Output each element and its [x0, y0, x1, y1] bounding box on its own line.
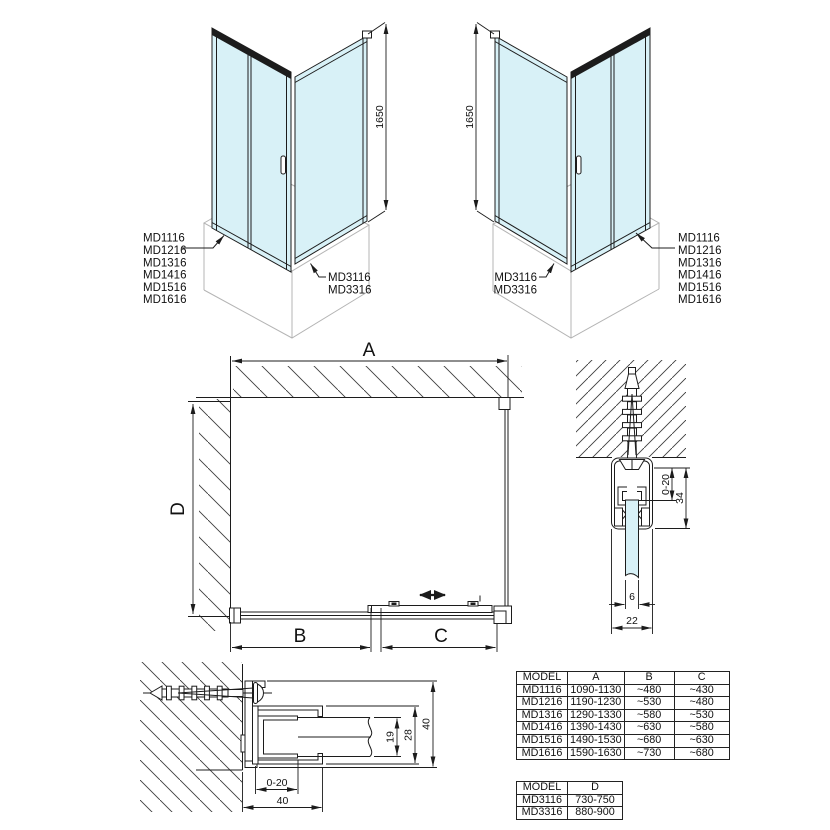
model-label: MD3116 — [328, 272, 371, 284]
table-row: MD1116 1090-1130 ~480 ~430 — [517, 684, 730, 697]
height-dim-label: 34 — [674, 492, 686, 504]
table-cell: 1090-1130 — [568, 684, 625, 697]
table-cell: MD3316 — [517, 807, 568, 820]
table-cell: 1290-1330 — [568, 709, 625, 722]
table-cell: ~580 — [624, 709, 674, 722]
table-cell: ~530 — [674, 709, 729, 722]
model-label: MD1116 — [143, 233, 185, 245]
table-cell: ~730 — [624, 747, 674, 760]
dimension-table-side: MODEL D MD3116 730-750 MD3316 880-900 — [516, 781, 623, 820]
model-label: MD1416 — [678, 270, 721, 282]
dim-d-label: D — [168, 502, 189, 516]
table-cell: 730-750 — [568, 794, 623, 807]
table-header-row: MODEL A B C — [517, 672, 730, 685]
height-dim-label: 1650 — [374, 105, 386, 129]
column-header: C — [674, 672, 729, 685]
model-label: MD1116 — [678, 233, 720, 245]
table-cell: MD1316 — [517, 709, 568, 722]
leader-arrow — [311, 264, 327, 278]
table-cell: ~580 — [674, 722, 729, 735]
table-cell: MD1516 — [517, 734, 568, 747]
table-cell: ~680 — [674, 747, 729, 760]
model-label: MD1516 — [143, 282, 186, 294]
dim-c-label: C — [434, 626, 448, 647]
table-cell: MD3116 — [517, 794, 568, 807]
column-header: B — [624, 672, 674, 685]
column-header: A — [568, 672, 625, 685]
table-row: MD1316 1290-1330 ~580 ~530 — [517, 709, 730, 722]
technical-drawing-sheet: 1650 MD1116 MD1216 MD1316 MD1416 MD1516 … — [0, 0, 830, 830]
side-panel-plan — [499, 398, 510, 611]
adjustable-channel — [253, 706, 323, 764]
model-label: MD1416 — [143, 270, 186, 282]
table-cell: ~480 — [674, 697, 729, 710]
glass-dim-label: 6 — [629, 591, 635, 603]
corner-bracket — [494, 606, 512, 624]
table-cell: 1490-1530 — [568, 734, 625, 747]
model-label: MD3116 — [494, 272, 537, 284]
height-dim-label: 40 — [421, 718, 433, 730]
table-row: MD3116 730-750 — [517, 794, 623, 807]
table-cell: 1390-1430 — [568, 722, 625, 735]
model-label: MD1616 — [678, 294, 721, 306]
iso-view-right: 1650 MD3116 MD3316 MD1116 MD1216 MD1316 … — [464, 23, 721, 339]
door-handle — [281, 156, 286, 174]
width-dim-label: 22 — [626, 615, 638, 627]
glass-panel-section — [298, 718, 372, 757]
side-model-labels: MD3116 MD3316 — [494, 264, 554, 297]
iso-view-left: 1650 MD1116 MD1216 MD1316 MD1416 MD1516 … — [143, 23, 386, 339]
table-cell: MD1216 — [517, 697, 568, 710]
dimension-table-main: MODEL A B C MD1116 1090-1130 ~480 ~430 M… — [516, 671, 730, 760]
model-label: MD1616 — [143, 294, 186, 306]
dim-b-label: B — [294, 626, 307, 647]
door-handle — [577, 156, 582, 174]
width-dim-label: 40 — [277, 795, 289, 807]
column-header: MODEL — [517, 782, 568, 795]
model-label: MD3316 — [494, 285, 537, 297]
wall-bracket-left — [230, 608, 241, 623]
table-cell: MD1116 — [517, 684, 568, 697]
dimension-b: B — [231, 608, 372, 652]
table-row: MD3316 880-900 — [517, 807, 623, 820]
height-dimension: 1650 — [464, 23, 494, 223]
wall-profile-section-detail: 19 28 40 0-20 40 — [140, 662, 437, 812]
table-cell: MD1616 — [517, 747, 568, 760]
wall-hatch-top — [233, 366, 522, 397]
height-dimension: 1650 — [368, 23, 386, 223]
wall-hatch — [140, 662, 242, 812]
dimension-40-width: 40 — [243, 768, 323, 812]
side-panel-dimensions-table: MODEL D MD3116 730-750 MD3316 880-900 — [516, 781, 623, 820]
plan-view: A D — [168, 340, 524, 652]
height-dim-label: 1650 — [464, 105, 476, 129]
table-row: MD1516 1490-1530 ~680 ~630 — [517, 734, 730, 747]
model-label: MD1216 — [678, 245, 721, 257]
dimension-28: 28 — [326, 706, 419, 764]
table-row: MD1216 1190-1230 ~530 ~480 — [517, 697, 730, 710]
glass-section — [626, 500, 639, 578]
table-cell: MD1416 — [517, 722, 568, 735]
model-label: MD3316 — [328, 285, 371, 297]
leader-arrow — [181, 236, 224, 249]
dim-a-label: A — [363, 340, 376, 361]
table-row: MD1416 1390-1430 ~630 ~580 — [517, 722, 730, 735]
column-header: MODEL — [517, 672, 568, 685]
channel-dim-label: 28 — [403, 729, 415, 741]
leader-arrow — [539, 264, 554, 278]
top-rail-section-detail: 0-20 34 6 22 — [576, 360, 690, 634]
wall-hatch-left — [199, 399, 230, 631]
table-cell: ~630 — [674, 734, 729, 747]
model-label: MD1316 — [678, 257, 721, 269]
table-cell: 1590-1630 — [568, 747, 625, 760]
dimension-glass-6: 6 — [609, 580, 655, 609]
side-panel-glass — [495, 36, 567, 264]
model-label: MD1316 — [143, 257, 186, 269]
wall-profile-bracket — [499, 398, 510, 410]
table-cell: ~430 — [674, 684, 729, 697]
leader-arrow — [636, 233, 675, 248]
dimension-19: 19 — [374, 718, 401, 757]
table-row: MD1616 1590-1630 ~730 ~680 — [517, 747, 730, 760]
table-cell: ~630 — [624, 722, 674, 735]
table-cell: 880-900 — [568, 807, 623, 820]
side-panel-glass — [295, 36, 367, 264]
dimension-adjust-0-20: 0-20 — [256, 760, 299, 794]
screw-head — [254, 683, 258, 704]
model-dimensions-table: MODEL A B C MD1116 1090-1130 ~480 ~430 M… — [516, 671, 730, 760]
dimension-c: C — [381, 608, 497, 652]
table-header-row: MODEL D — [517, 782, 623, 795]
door-model-labels: MD1116 MD1216 MD1316 MD1416 MD1516 MD161… — [143, 233, 224, 307]
table-cell: ~680 — [624, 734, 674, 747]
adjust-dim-label: 0-20 — [266, 777, 287, 789]
model-label: MD1216 — [143, 245, 186, 257]
table-cell: 1190-1230 — [568, 697, 625, 710]
adjust-dim-label: 0-20 — [660, 474, 672, 495]
table-cell: ~480 — [624, 684, 674, 697]
table-cell: ~530 — [624, 697, 674, 710]
model-label: MD1516 — [678, 282, 721, 294]
side-model-labels: MD3116 MD3316 — [311, 264, 372, 297]
column-header: D — [568, 782, 623, 795]
glass-dim-label: 19 — [385, 731, 397, 743]
